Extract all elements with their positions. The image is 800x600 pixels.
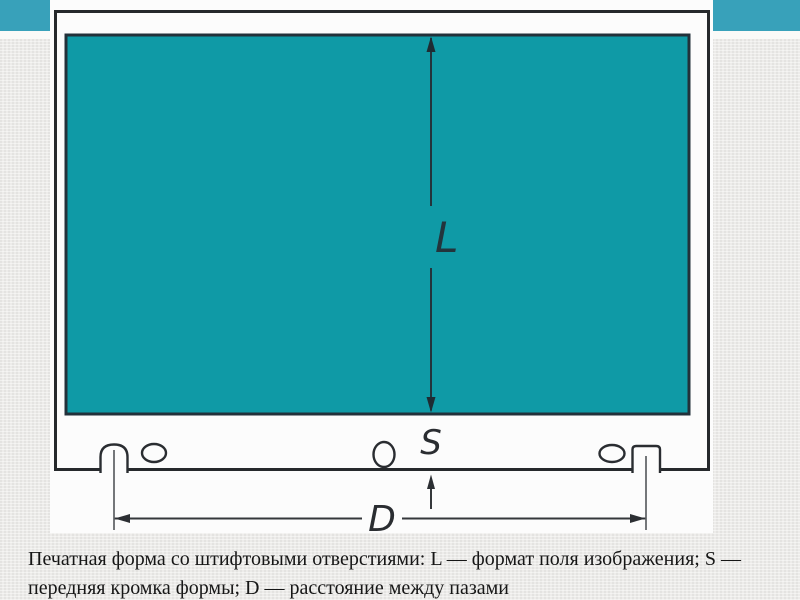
dimension-S-label: S [420, 423, 442, 463]
dimension-D-label: D [368, 499, 396, 533]
arrowhead-up-icon [427, 475, 435, 490]
arrowhead-left-icon [115, 514, 131, 523]
caption-line-1: Печатная форма со штифтовыми отверстиями… [28, 545, 776, 574]
slide: L S D [0, 0, 800, 600]
oval-hole-right [600, 445, 625, 462]
image-area [66, 35, 689, 414]
arrowhead-right-icon [630, 514, 646, 523]
caption-line-2: передняя кромка формы; D — расстояние ме… [28, 574, 776, 600]
dimension-L-label: L [435, 213, 458, 262]
oval-hole-center [374, 442, 395, 467]
figure-caption: Печатная форма со штифтовыми отверстиями… [28, 545, 776, 600]
dimension-D: D [115, 499, 646, 533]
printing-plate-figure: L S D [50, 0, 713, 533]
oval-hole-left [142, 444, 166, 462]
plate-diagram: L S D [50, 0, 713, 533]
dimension-S [427, 475, 435, 510]
